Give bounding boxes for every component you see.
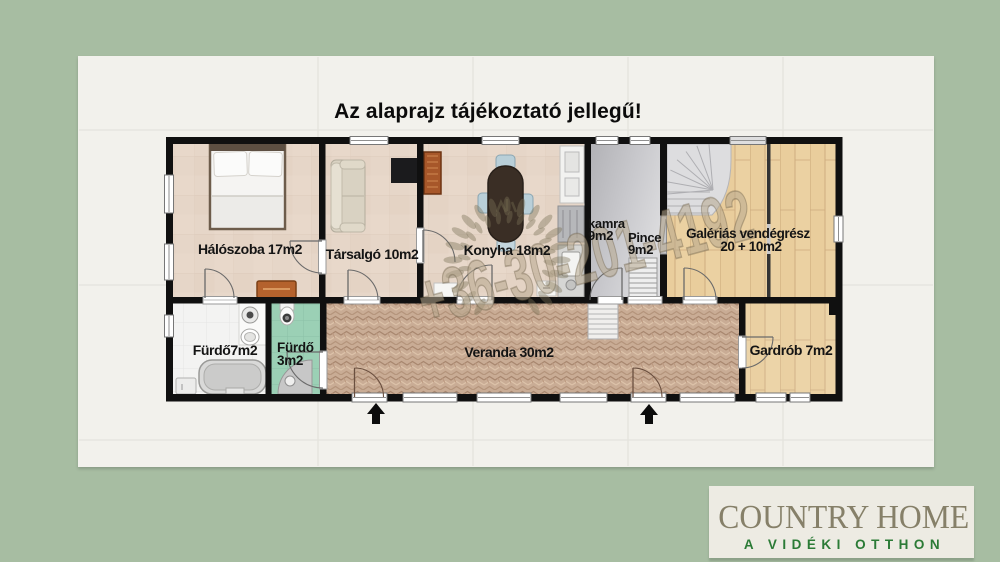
svg-text:9m2: 9m2 — [628, 242, 653, 257]
svg-text:Veranda 30m2: Veranda 30m2 — [464, 344, 554, 360]
svg-text:Gardrób 7m2: Gardrób 7m2 — [750, 342, 833, 358]
svg-text:Fürdő7m2: Fürdő7m2 — [193, 342, 258, 358]
svg-text:9m2: 9m2 — [588, 228, 613, 243]
svg-text:20 + 10m2: 20 + 10m2 — [720, 239, 781, 254]
svg-text:3m2: 3m2 — [277, 353, 303, 368]
svg-text:Hálószoba 17m2: Hálószoba 17m2 — [198, 241, 303, 257]
svg-text:Konyha 18m2: Konyha 18m2 — [464, 242, 551, 258]
svg-text:Társalgó 10m2: Társalgó 10m2 — [326, 246, 419, 262]
